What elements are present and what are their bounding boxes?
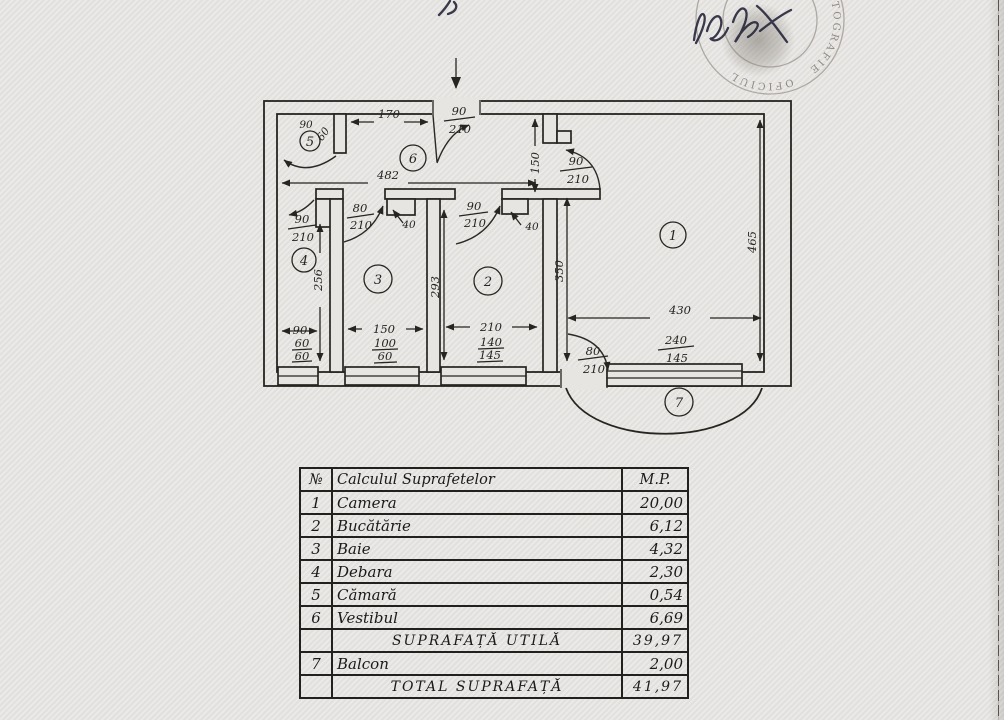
header-num: № (309, 472, 323, 488)
row-num: 6 (311, 609, 321, 627)
dim-room2-win-w: 140 (480, 335, 502, 349)
row-name: SUPRAFAȚĂ UTILĂ (392, 633, 562, 649)
dim-pantry-w: 90 (299, 119, 313, 131)
inner-wall-outline (277, 114, 764, 372)
dim-482: 482 (376, 168, 399, 182)
dimension-labels: 90 210 170 90 60 482 150 90 210 465 90 2… (291, 104, 759, 376)
dim-room1-door-w: 90 (569, 154, 584, 168)
dim-240: 240 (664, 333, 687, 347)
dim-room4-win-h: 60 (295, 349, 310, 363)
row-num: 4 (311, 563, 321, 581)
round-stamp: CARTOGRAFIE OFICIUL (694, 0, 844, 94)
room-label-2: 2 (483, 275, 492, 290)
hall-south-wall-c (502, 189, 600, 199)
dim-150: 150 (528, 152, 542, 174)
table-header-row: № Calculul Suprafetelor M.P. (300, 468, 688, 491)
balcony-outline (566, 388, 762, 434)
row-value: 2,30 (650, 563, 683, 581)
table-row: 7 Balcon 2,00 (300, 652, 688, 675)
area-calculation-table: № Calculul Suprafetelor M.P. 1 Camera 20… (299, 467, 689, 699)
row-name: Cămară (337, 586, 397, 604)
scanned-floorplan-page: { "page": { "background": "#e7e5e2", "in… (0, 0, 1004, 720)
header-unit: M.P. (640, 472, 671, 488)
row-num: 1 (311, 494, 321, 512)
row-name: Vestibul (337, 609, 398, 627)
dim-room3-win-h: 60 (378, 349, 393, 363)
dim-40-a: 40 (401, 219, 416, 231)
dim-room4-win-w: 60 (295, 336, 310, 350)
row-value: 20,00 (640, 494, 683, 512)
row-num: 5 (311, 586, 321, 604)
niche-stub (543, 114, 557, 143)
row-name: TOTAL SUPRAFAȚĂ (391, 679, 564, 695)
dim-40-b: 40 (524, 221, 539, 233)
table-row: 6 Vestibul 6,69 (300, 606, 688, 629)
dim-room3-door-w: 80 (353, 201, 368, 215)
walls (264, 97, 791, 390)
row-value: 39,97 (633, 633, 683, 649)
row-name: Bucătărie (337, 517, 411, 535)
dim-room4-door-h: 210 (291, 230, 314, 244)
dim-430: 430 (668, 303, 691, 317)
row-value: 0,54 (650, 586, 683, 604)
table-row: 4 Debara 2,30 (300, 560, 688, 583)
table-row-suprafata-utila: SUPRAFAȚĂ UTILĂ 39,97 (300, 629, 688, 652)
table-row-total: TOTAL SUPRAFAȚĂ 41,97 (300, 675, 688, 698)
dim-room2-door-h: 210 (463, 216, 486, 230)
windows (278, 364, 742, 386)
dim-170: 170 (378, 107, 400, 121)
dim-293: 293 (428, 276, 442, 299)
row-name: Balcon (337, 655, 389, 673)
pantry-stub-wall (334, 114, 346, 153)
wall-room4-room3 (330, 199, 343, 372)
room-label-1: 1 (669, 229, 677, 244)
table-row: 1 Camera 20,00 (300, 491, 688, 514)
dim-room3-w: 150 (373, 322, 395, 336)
table-row: 3 Baie 4,32 (300, 537, 688, 560)
stamp-text-cartografie: CARTOGRAFIE (806, 0, 842, 76)
row-name: Baie (337, 540, 371, 558)
niche-pilaster (557, 131, 571, 143)
jamb-room3 (387, 199, 415, 215)
row-value: 6,69 (650, 609, 683, 627)
dim-256: 256 (311, 269, 325, 292)
jamb-room2 (502, 199, 528, 214)
dim-balcony-door-h: 210 (582, 362, 605, 376)
row-num: 3 (311, 540, 321, 558)
dim-room3-win-w: 100 (374, 336, 396, 350)
row-value: 2,00 (650, 655, 683, 673)
hall-south-wall-b (385, 189, 455, 199)
room-label-3: 3 (374, 273, 382, 288)
dim-pantry-d: 60 (315, 125, 333, 143)
room-label-6: 6 (409, 152, 417, 167)
dim-room4-door-w: 90 (295, 212, 310, 226)
row-num: 7 (311, 655, 321, 673)
room-label-4: 4 (299, 254, 308, 269)
dim-balcony-door-w: 80 (586, 344, 601, 358)
row-name: Debara (337, 563, 393, 581)
row-num: 2 (311, 517, 321, 535)
svg-text:CARTOGRAFIE: CARTOGRAFIE (806, 0, 842, 76)
dim-room2-win-h: 145 (479, 348, 501, 362)
dim-room2-w: 210 (479, 320, 502, 334)
dim-145: 145 (666, 351, 688, 365)
dim-350: 350 (552, 260, 566, 282)
dim-room4-w: 90 (293, 323, 308, 337)
row-value: 6,12 (650, 517, 683, 535)
row-value: 41,97 (633, 679, 683, 695)
table-row: 2 Bucătărie 6,12 (300, 514, 688, 537)
hall-south-wall-a (316, 189, 343, 199)
dim-room2-door-w: 90 (467, 199, 482, 213)
room-label-5: 5 (306, 135, 314, 150)
row-name: Camera (337, 494, 397, 512)
window-room1-balcony (607, 364, 742, 386)
dim-room3-door-h: 210 (349, 218, 372, 232)
row-value: 4,32 (650, 540, 683, 558)
dim-465: 465 (745, 231, 759, 254)
dim-room1-door-h: 210 (566, 172, 589, 186)
table-row: 5 Cămară 0,54 (300, 583, 688, 606)
dim-entrance-door-h: 210 (448, 122, 471, 136)
room-label-7: 7 (675, 396, 684, 411)
header-name: Calculul Suprafetelor (337, 472, 495, 488)
dim-entrance-door-w: 90 (452, 104, 467, 118)
wall-room2-room1 (543, 199, 557, 372)
pantry-door-swing (284, 156, 336, 168)
jamb-room4 (316, 199, 331, 227)
handwriting-fragment (439, 1, 456, 15)
